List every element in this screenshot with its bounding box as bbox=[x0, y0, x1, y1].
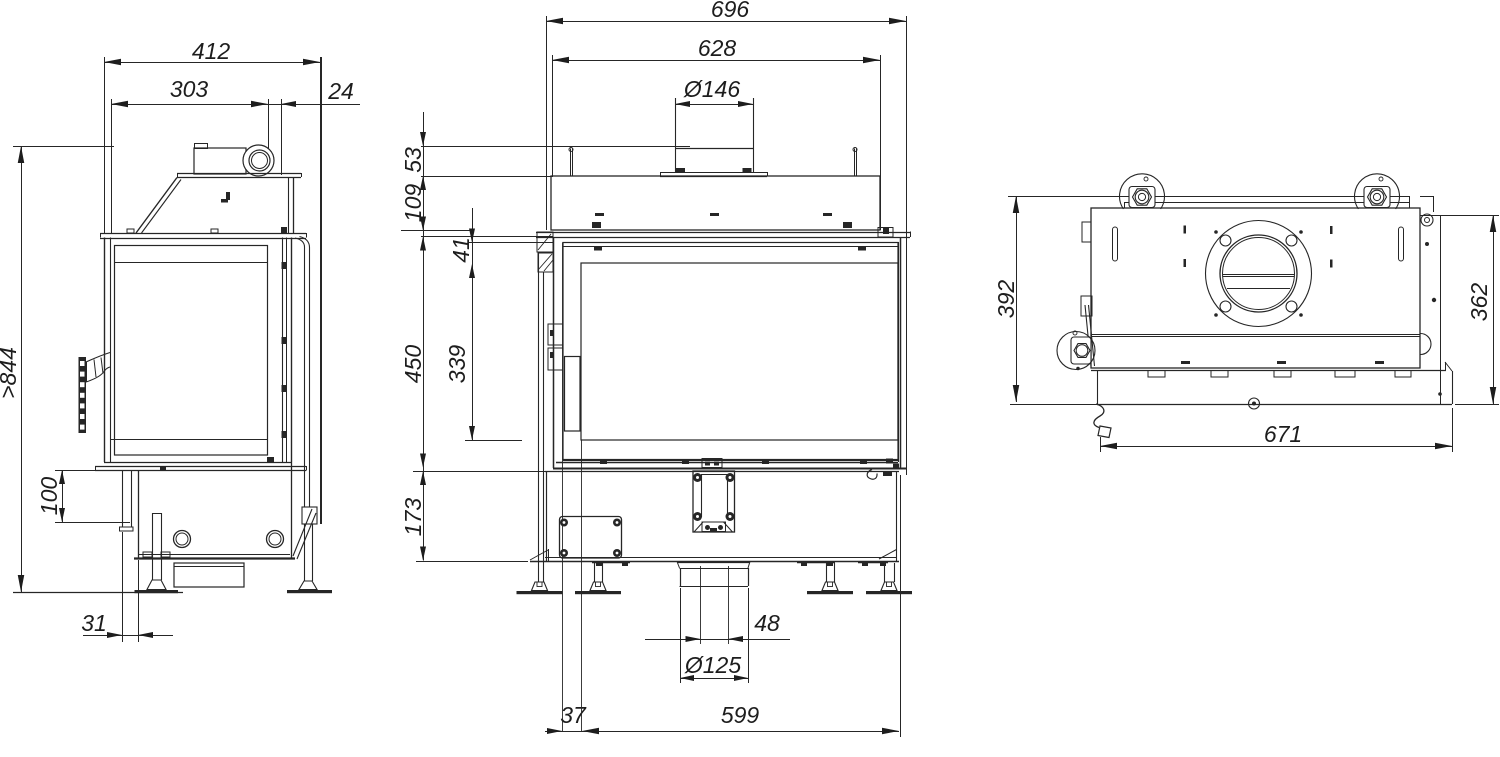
svg-text:41: 41 bbox=[448, 237, 474, 263]
svg-text:100: 100 bbox=[36, 477, 62, 516]
svg-text:173: 173 bbox=[400, 498, 426, 537]
svg-text:392: 392 bbox=[993, 280, 1019, 319]
svg-text:412: 412 bbox=[192, 38, 231, 64]
svg-text:599: 599 bbox=[721, 702, 760, 728]
svg-text:303: 303 bbox=[170, 76, 209, 102]
svg-text:37: 37 bbox=[560, 702, 587, 728]
svg-text:362: 362 bbox=[1466, 283, 1492, 322]
svg-text:339: 339 bbox=[444, 345, 470, 384]
svg-text:628: 628 bbox=[698, 35, 737, 61]
svg-text:>844: >844 bbox=[0, 347, 21, 399]
svg-text:109: 109 bbox=[400, 184, 426, 223]
svg-text:450: 450 bbox=[400, 345, 426, 384]
svg-text:24: 24 bbox=[327, 78, 354, 104]
svg-text:48: 48 bbox=[754, 610, 780, 636]
svg-text:Ø125: Ø125 bbox=[684, 652, 741, 678]
svg-text:696: 696 bbox=[711, 0, 750, 22]
svg-text:53: 53 bbox=[400, 147, 426, 173]
svg-text:31: 31 bbox=[81, 610, 107, 636]
svg-text:671: 671 bbox=[1264, 421, 1302, 447]
svg-text:Ø146: Ø146 bbox=[683, 76, 740, 102]
